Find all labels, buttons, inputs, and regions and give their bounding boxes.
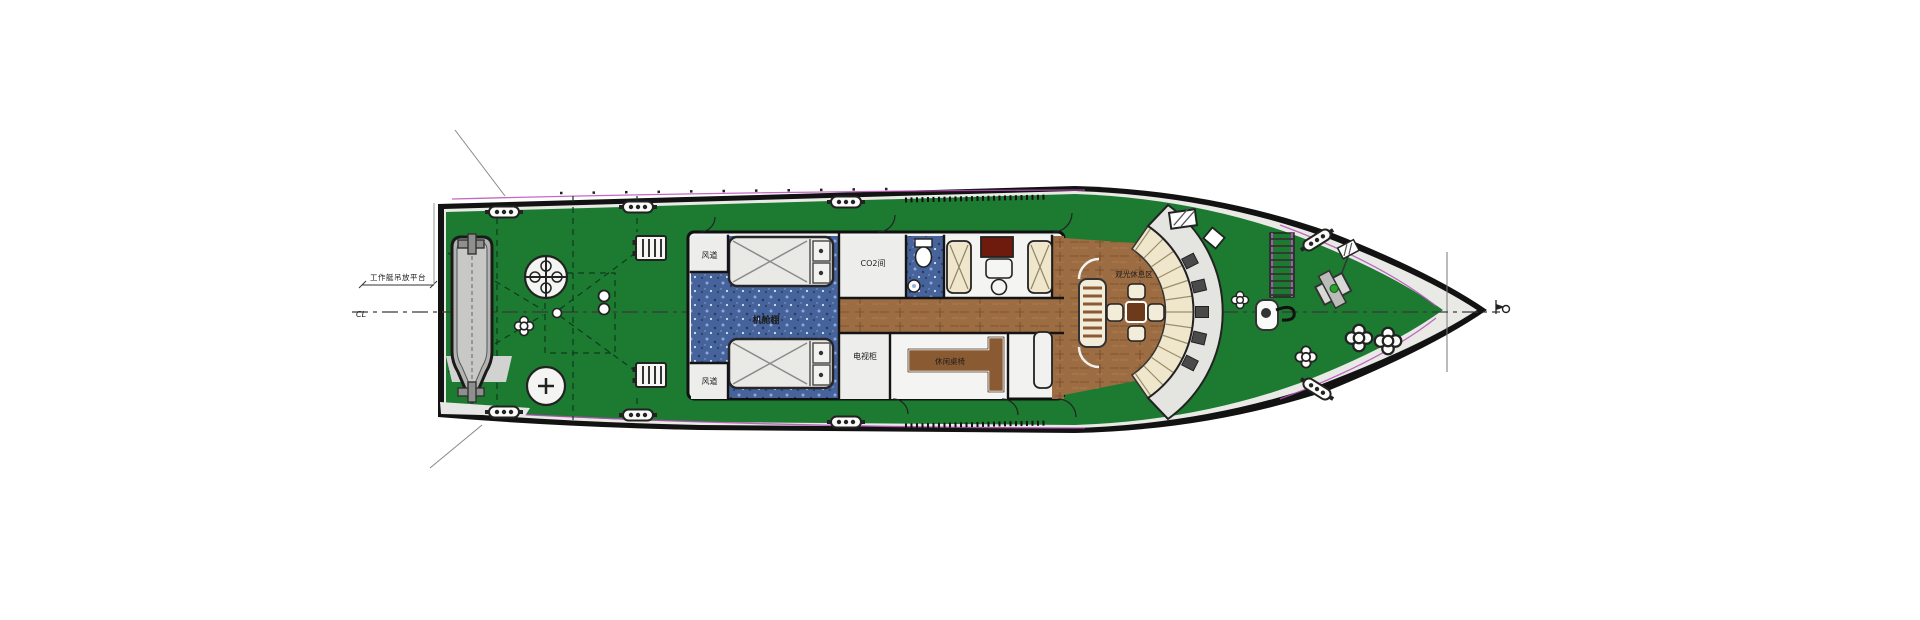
red-cabinet <box>981 237 1013 257</box>
air-duct-top-label: 风道 <box>702 250 718 260</box>
ship-deck-plan-canvas: 工作艇吊放平台 CL <box>0 0 1920 620</box>
centerline-mark: CL <box>356 310 366 319</box>
air-duct-bottom-label: 风道 <box>702 376 718 386</box>
cabinet-pillar <box>1034 332 1052 388</box>
superstructure: 休闲桌椅 风道 风道 机舱棚 CO2间 电视柜 <box>688 232 1102 399</box>
tv-room-label: 电视柜 <box>853 351 877 361</box>
toilet <box>915 239 932 267</box>
engine-skylight-bottom <box>729 339 833 388</box>
dimension-callout: 工作艇吊放平台 <box>359 203 437 288</box>
saloon-furniture <box>947 237 1052 295</box>
slatted-bench <box>1079 279 1106 347</box>
lounge-table-label: 休闲桌椅 <box>935 356 965 366</box>
chair <box>986 259 1012 278</box>
tv-room <box>840 333 890 399</box>
engine-skylight-top <box>729 237 833 286</box>
deck-winch-top <box>633 236 667 260</box>
stool <box>992 280 1007 295</box>
capstan-aft-bottom <box>527 367 565 405</box>
bow-lounge-label: 观光休息区 <box>1115 269 1153 279</box>
centerline-fitting <box>553 309 562 318</box>
wash-basin <box>908 280 920 292</box>
engine-casing-label: 机舱棚 <box>752 314 779 326</box>
deck-plan-drawing: 工作艇吊放平台 CL <box>0 0 1920 620</box>
davit-platform-label: 工作艇吊放平台 <box>370 272 426 282</box>
co2-room-label: CO2间 <box>861 259 886 268</box>
deck-winch-bottom <box>633 363 667 387</box>
capstan-aft-top <box>525 256 567 298</box>
